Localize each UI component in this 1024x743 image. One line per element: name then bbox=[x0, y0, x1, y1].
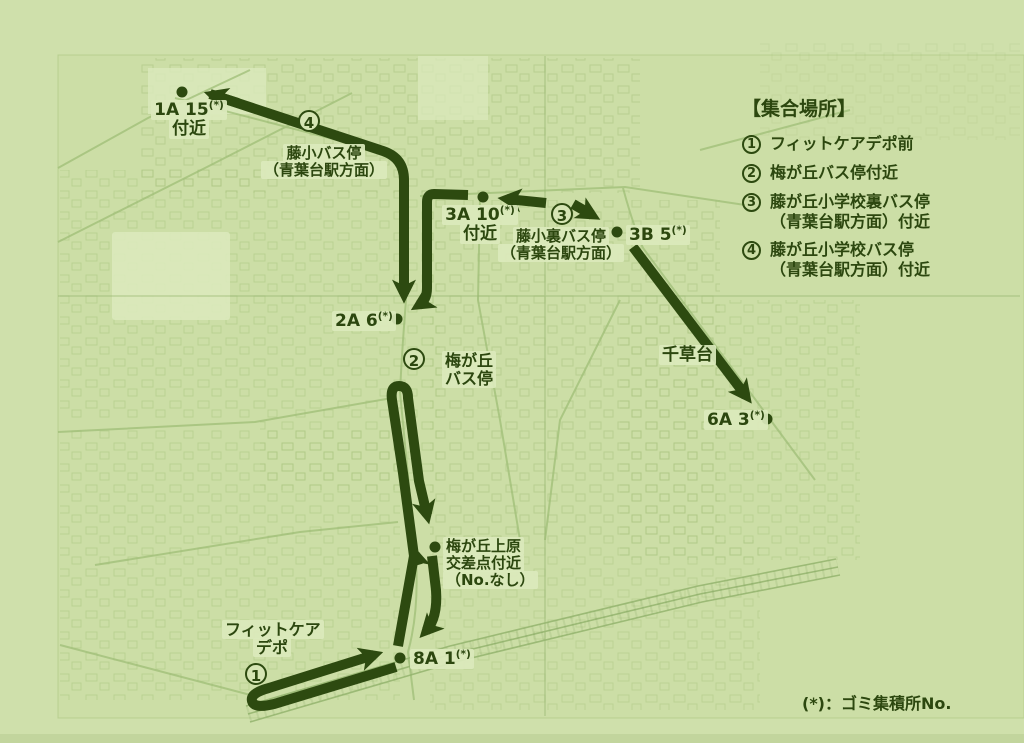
legend-item-3-text: 藤が丘小学校裏バス停 （青葉台駅方面）付近 bbox=[770, 192, 930, 231]
label-6a3-star: (*) bbox=[750, 409, 765, 421]
legend-item-1-number: 1 bbox=[742, 135, 761, 154]
label-chigusadai-text: 千草台 bbox=[659, 345, 716, 365]
legend-item-4-number: 4 bbox=[742, 241, 761, 260]
label-3a10-id: 3A 10 bbox=[445, 205, 500, 225]
label-1a15-id: 1A 15 bbox=[154, 100, 209, 120]
label-intersection-line2: 交差点付近 bbox=[443, 554, 524, 572]
label-fujishoura-stop: 藤小裏バス停 （青葉台駅方面） bbox=[477, 228, 645, 262]
map-marker-3-number: 3 bbox=[557, 207, 567, 225]
legend-title: 【集合場所】 bbox=[742, 94, 1024, 121]
label-2a6-star: (*) bbox=[378, 310, 393, 322]
label-fujishoura-line2: （青葉台駅方面） bbox=[498, 244, 624, 262]
route-map: 4 3 2 1 1A 15(*) 付近 藤小バス停 （青葉台駅方面） 3A 10… bbox=[0, 0, 1024, 743]
label-fitcare-line1: フィットケア bbox=[222, 620, 324, 639]
legend-item-2-number: 2 bbox=[742, 164, 761, 183]
map-marker-1-number: 1 bbox=[251, 667, 261, 685]
legend: 【集合場所】 1 フィットケアデポ前 2 梅が丘バス停付近 3 藤が丘小学校裏バ… bbox=[742, 94, 1024, 288]
spot-dot-1a15 bbox=[177, 87, 188, 98]
label-intersection-line1: 梅が丘上原 bbox=[443, 537, 524, 555]
route-up-arrow-intersection bbox=[415, 554, 418, 565]
legend-item-2: 2 梅が丘バス停付近 bbox=[742, 163, 1024, 183]
legend-item-4-line2: （青葉台駅方面）付近 bbox=[770, 260, 930, 279]
label-1a15: 1A 15(*) 付近 bbox=[139, 99, 239, 139]
legend-item-4: 4 藤が丘小学校バス停 （青葉台駅方面）付近 bbox=[742, 240, 1024, 279]
map-marker-4-number: 4 bbox=[304, 114, 314, 132]
label-fitcare-line2: デポ bbox=[253, 638, 291, 657]
legend-item-3-line2: （青葉台駅方面）付近 bbox=[770, 212, 930, 231]
route-intersection-down-to-8a1 bbox=[426, 556, 436, 631]
label-chigusadai: 千草台 bbox=[659, 346, 716, 365]
label-3b5-id: 3B 5 bbox=[629, 225, 672, 245]
legend-item-4-line1: 藤が丘小学校バス停 bbox=[770, 240, 914, 259]
spot-dot-intersection bbox=[430, 542, 441, 553]
route-street-arrow-3a10 bbox=[507, 199, 546, 203]
label-3b5: 3B 5(*) bbox=[626, 224, 690, 245]
spot-dot-8a1 bbox=[395, 653, 406, 664]
label-8a1: 8A 1(*) bbox=[410, 648, 474, 669]
label-umegaoka-line2: バス停 bbox=[442, 369, 496, 388]
label-intersection-line3: （No.なし） bbox=[443, 571, 538, 589]
label-fujishoura-line1: 藤小裏バス停 bbox=[513, 227, 609, 245]
label-fujisho-line1: 藤小バス停 bbox=[283, 144, 364, 162]
label-umegaoka-line1: 梅が丘 bbox=[442, 351, 496, 370]
map-marker-2: 2 bbox=[403, 348, 425, 370]
map-marker-2-number: 2 bbox=[409, 352, 419, 370]
footnote: (*)：ゴミ集積所No. bbox=[802, 690, 951, 714]
label-umegaoka-stop: 梅が丘 バス停 bbox=[442, 352, 496, 388]
label-8a1-star: (*) bbox=[456, 648, 471, 660]
label-fitcare-depot: フィットケア デポ bbox=[222, 621, 322, 657]
legend-item-3-number: 3 bbox=[742, 193, 761, 212]
label-8a1-id: 8A 1 bbox=[413, 649, 456, 669]
legend-item-3-line1: 藤が丘小学校裏バス停 bbox=[770, 192, 930, 211]
label-3b5-star: (*) bbox=[672, 224, 687, 236]
legend-item-4-text: 藤が丘小学校バス停 （青葉台駅方面）付近 bbox=[770, 240, 930, 279]
map-marker-3: 3 bbox=[551, 203, 573, 225]
label-1a15-near: 付近 bbox=[169, 119, 209, 139]
legend-item-1-text: フィットケアデポ前 bbox=[770, 134, 914, 154]
label-2a6: 2A 6(*) bbox=[332, 310, 396, 331]
spot-dot-3a10 bbox=[478, 192, 489, 203]
label-3a10-star: (*) bbox=[500, 204, 515, 216]
legend-item-2-text: 梅が丘バス停付近 bbox=[770, 163, 898, 183]
label-fujisho-line2: （青葉台駅方面） bbox=[261, 161, 387, 179]
route-arrow-to-3b5 bbox=[573, 204, 592, 215]
label-1a15-star: (*) bbox=[209, 99, 224, 111]
label-6a3-id: 6A 3 bbox=[707, 410, 750, 430]
route-3b5-to-6a3 bbox=[633, 247, 746, 396]
legend-item-3: 3 藤が丘小学校裏バス停 （青葉台駅方面）付近 bbox=[742, 192, 1024, 231]
route-fitcare-depot-loop bbox=[252, 655, 396, 706]
label-2a6-id: 2A 6 bbox=[335, 311, 378, 331]
map-marker-4: 4 bbox=[298, 110, 320, 132]
map-marker-1: 1 bbox=[245, 663, 267, 685]
legend-item-1: 1 フィットケアデポ前 bbox=[742, 134, 1024, 154]
route-loop-8a1-to-intersection bbox=[392, 386, 427, 646]
label-6a3: 6A 3(*) bbox=[704, 409, 768, 430]
label-fujisho-stop: 藤小バス停 （青葉台駅方面） bbox=[240, 145, 408, 179]
label-intersection: 梅が丘上原 交差点付近 （No.なし） bbox=[443, 538, 538, 589]
